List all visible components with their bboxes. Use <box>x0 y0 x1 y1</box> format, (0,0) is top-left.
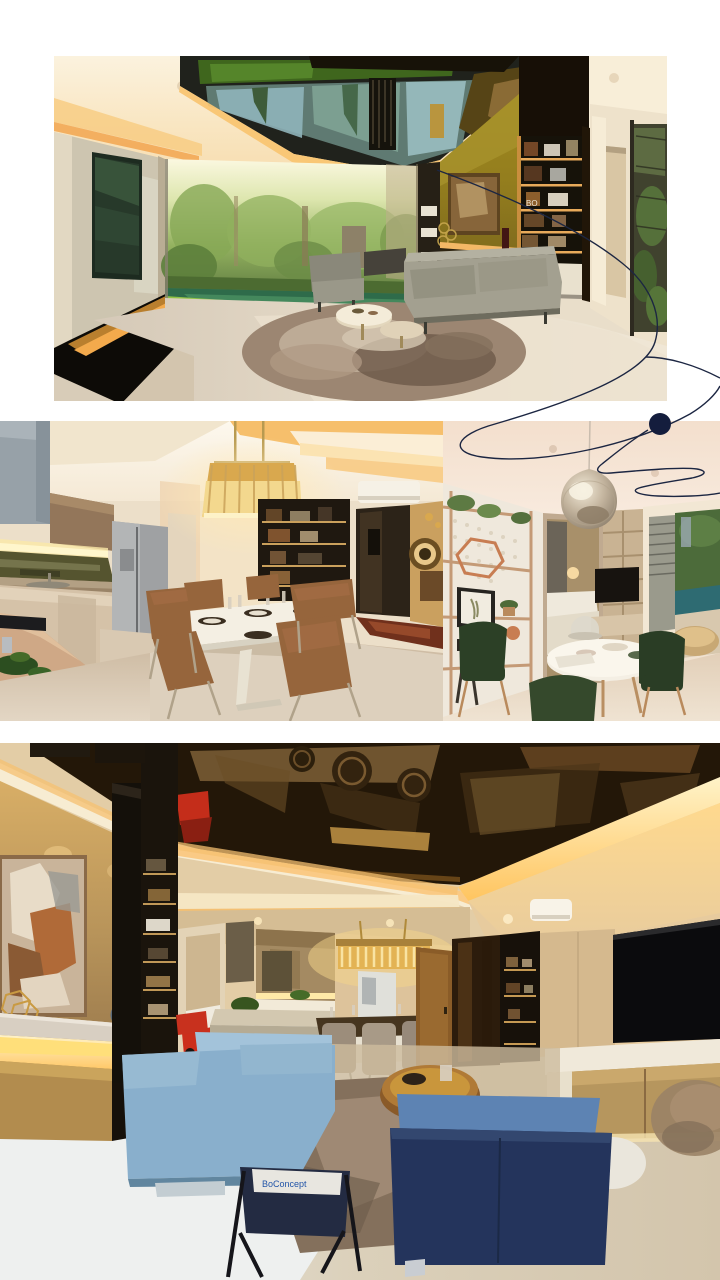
svg-text:BoConcept: BoConcept <box>262 1179 307 1189</box>
svg-text:BO: BO <box>526 199 538 208</box>
